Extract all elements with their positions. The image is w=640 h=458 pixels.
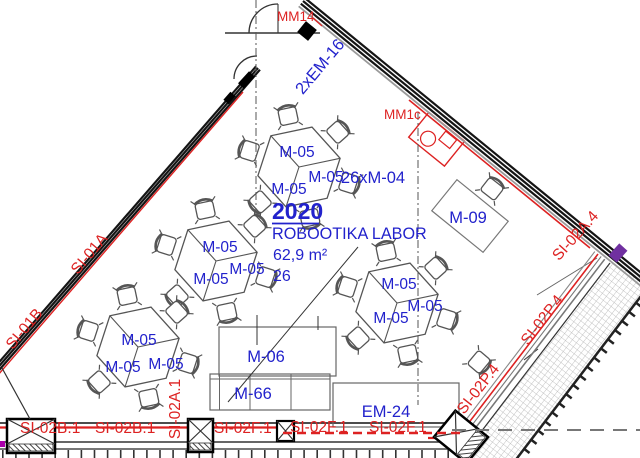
- label-m05-9: M-05: [105, 359, 140, 376]
- floor-plan-canvas: 2020 ROBOOTIKA LABOR 62,9 m² 26 26xM-04 …: [0, 0, 640, 458]
- label-m05-1: M-05: [279, 144, 314, 161]
- cabinet-m06: [219, 315, 336, 376]
- label-m05-5: M-05: [229, 261, 264, 278]
- wall-tag-si-02f1-a: SI-02F.1: [214, 420, 272, 437]
- label-m05-11: M-05: [407, 298, 442, 315]
- column-2: [188, 419, 213, 452]
- corner-leader-line: [537, 258, 597, 295]
- tag-mm14: MM14: [277, 9, 315, 24]
- tag-mm1c: MM1c: [384, 107, 421, 122]
- room-capacity: 26: [273, 268, 291, 285]
- label-m05-7: M-05: [121, 332, 156, 349]
- wall-tag-si-02b1-b: SI-02B.1: [95, 420, 155, 437]
- room-area: 62,9 m²: [273, 247, 328, 264]
- label-m09: M-09: [449, 209, 487, 227]
- label-m05-6: M-05: [193, 271, 228, 288]
- room-name: ROBOOTIKA LABOR: [272, 225, 427, 243]
- accent-purple-chip: [0, 441, 5, 447]
- room-number: 2020: [272, 198, 323, 224]
- top-right-wall: [299, 0, 640, 288]
- wall-tag-si-01a: SI-01A: [68, 230, 112, 278]
- labels: 2020 ROBOOTIKA LABOR 62,9 m² 26 26xM-04 …: [3, 9, 603, 439]
- label-m05-4: M-05: [202, 239, 237, 256]
- wall-tag-si-02a1: SI-02A.1: [167, 379, 184, 439]
- door-swing-arc-1: [249, 4, 278, 33]
- label-chairs-count: 26xM-04: [341, 169, 405, 187]
- label-m05-12: M-05: [373, 310, 408, 327]
- label-m05-10: M-05: [381, 276, 416, 293]
- floor-plan: 2020 ROBOOTIKA LABOR 62,9 m² 26 26xM-04 …: [0, 0, 640, 458]
- label-m05-3: M-05: [271, 181, 306, 198]
- label-m05-8: M-05: [148, 356, 183, 373]
- wall-tag-si-02b1-a: SI-02B.1: [20, 420, 80, 437]
- label-m05-2: M-05: [308, 169, 343, 186]
- label-m66: M-66: [234, 385, 272, 403]
- label-m06: M-06: [247, 348, 285, 366]
- table-group-right: [318, 225, 477, 381]
- label-door-em16: 2xEM-16: [292, 36, 348, 98]
- wall-tag-si-01b: SI-01B: [3, 305, 46, 352]
- door-post-1: [241, 74, 252, 86]
